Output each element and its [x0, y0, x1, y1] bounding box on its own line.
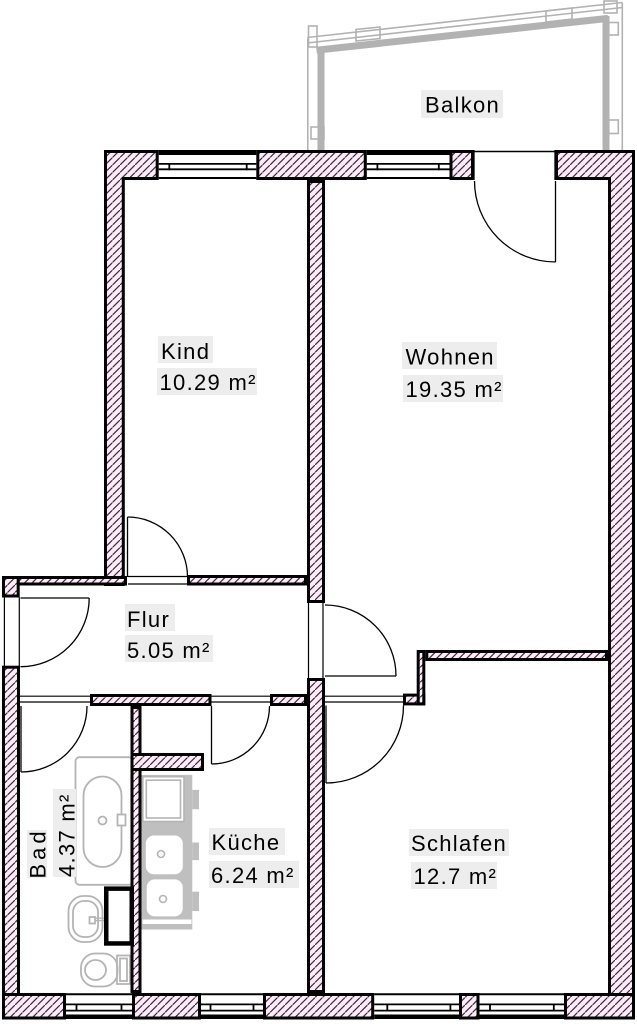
svg-text:10.29 m²: 10.29 m²: [160, 370, 257, 395]
svg-text:Wohnen: Wohnen: [406, 345, 495, 370]
svg-text:19.35 m²: 19.35 m²: [406, 377, 503, 402]
svg-text:Kind: Kind: [161, 339, 210, 364]
svg-text:5.05 m²: 5.05 m²: [127, 638, 211, 663]
svg-text:Bad: Bad: [26, 827, 51, 878]
svg-text:Küche: Küche: [212, 830, 281, 855]
svg-text:4.37 m²: 4.37 m²: [55, 793, 80, 877]
svg-text:6.24 m²: 6.24 m²: [211, 863, 295, 888]
svg-text:Schlafen: Schlafen: [411, 831, 507, 856]
svg-text:12.7 m²: 12.7 m²: [414, 864, 498, 889]
svg-text:Flur: Flur: [127, 607, 170, 632]
svg-text:Balkon: Balkon: [425, 93, 500, 118]
